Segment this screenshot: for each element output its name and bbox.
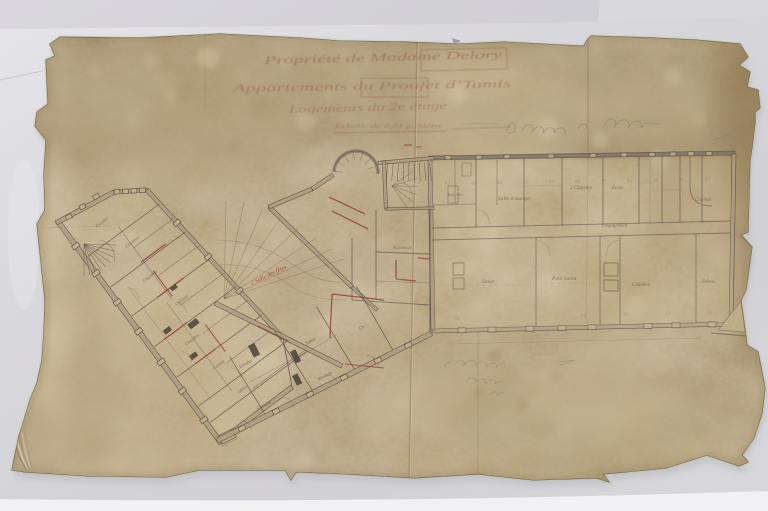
svg-text:Ascenseur: Ascenseur [392,245,412,250]
svg-text:Échelle de 0,01 p. Mètre: Échelle de 0,01 p. Mètre [333,122,443,130]
